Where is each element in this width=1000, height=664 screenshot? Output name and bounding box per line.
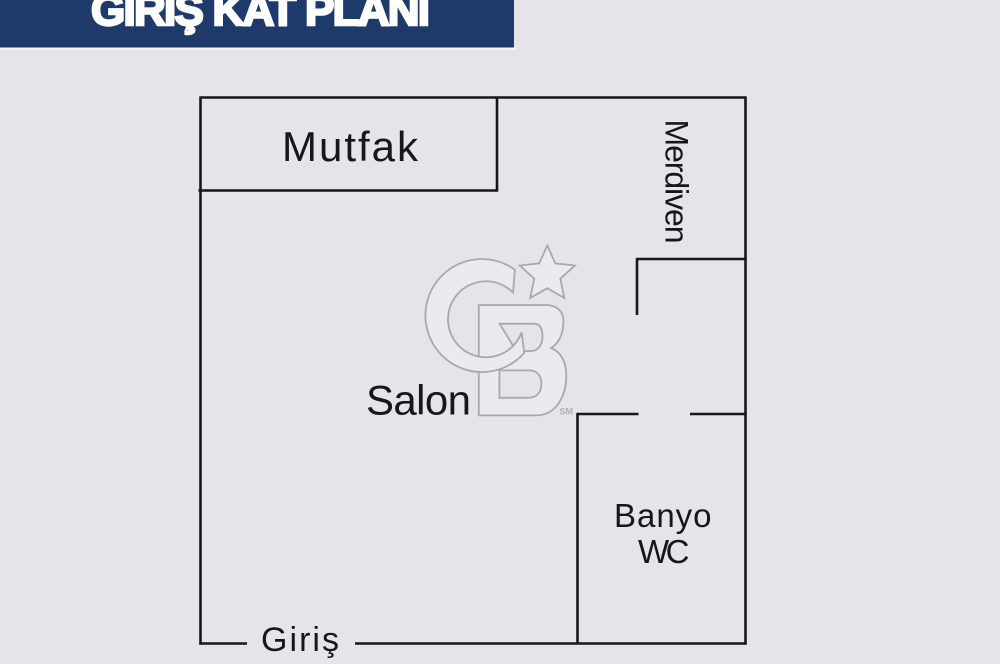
svg-text:Merdiven: Merdiven bbox=[659, 120, 695, 244]
svg-text:Mutfak: Mutfak bbox=[282, 123, 419, 170]
svg-text:GİRİŞ KAT PLANI: GİRİŞ KAT PLANI bbox=[91, 0, 430, 35]
svg-text:Banyo: Banyo bbox=[614, 497, 712, 534]
svg-text:Salon: Salon bbox=[366, 377, 471, 424]
svg-text:Giriş: Giriş bbox=[261, 621, 339, 659]
svg-text:WC: WC bbox=[638, 533, 690, 570]
svg-text:SM: SM bbox=[560, 407, 574, 417]
